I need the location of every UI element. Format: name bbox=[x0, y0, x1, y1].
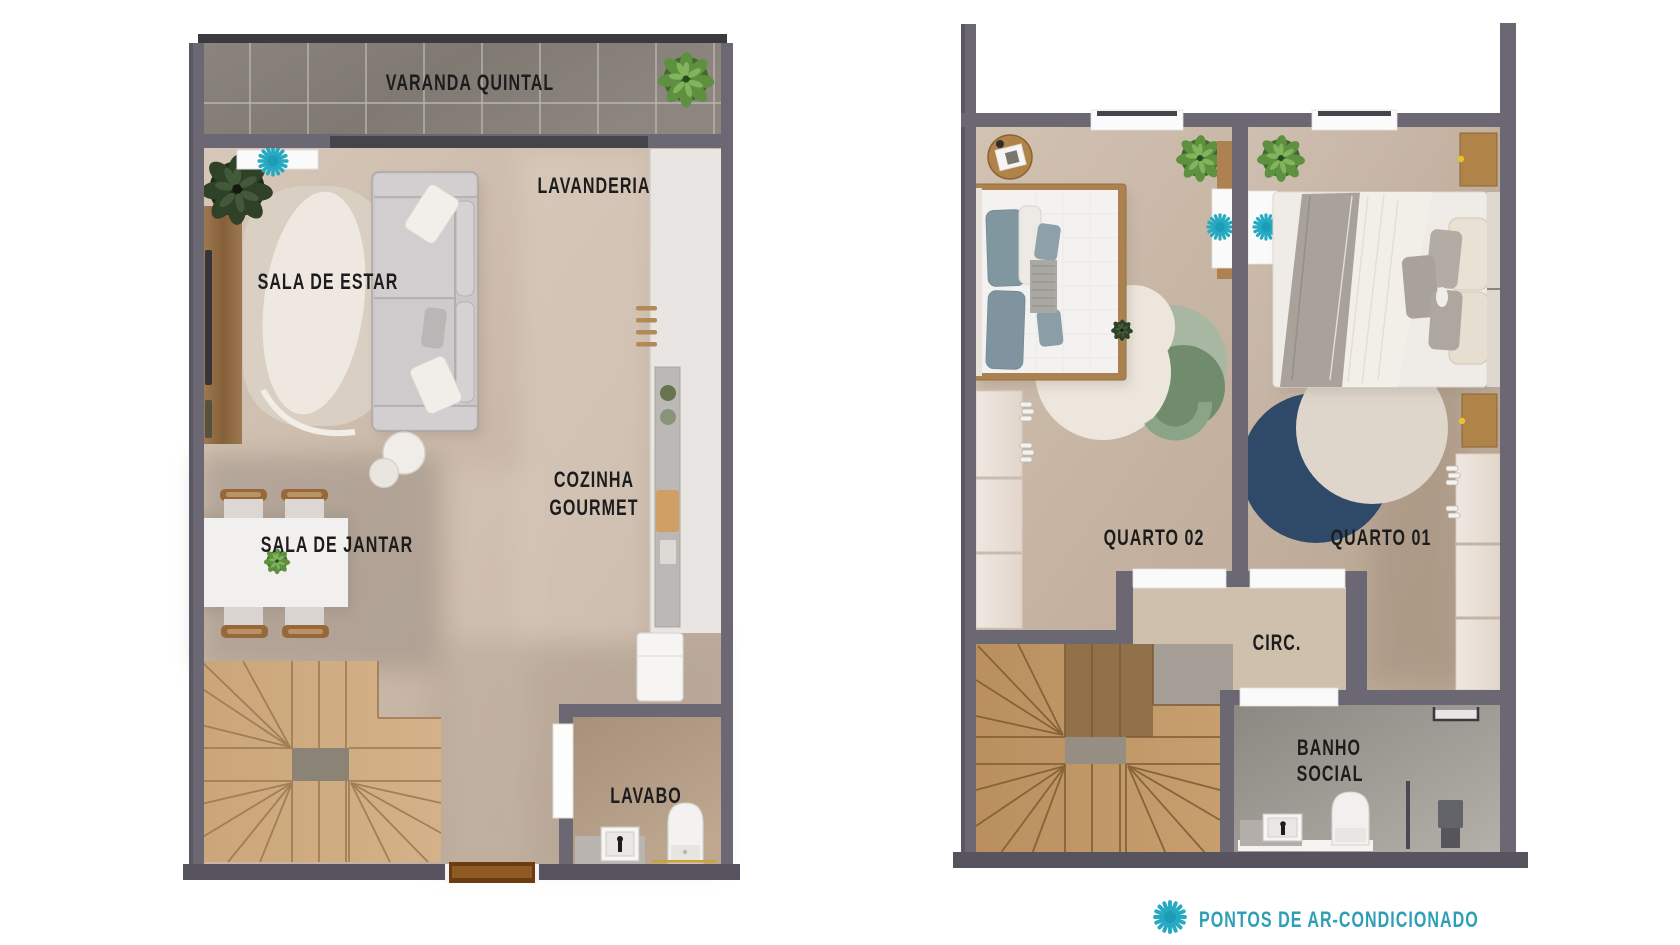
svg-text:SALA DE JANTAR: SALA DE JANTAR bbox=[261, 534, 414, 558]
svg-text:QUARTO 01: QUARTO 01 bbox=[1331, 527, 1432, 551]
svg-text:LAVABO: LAVABO bbox=[610, 785, 682, 809]
svg-text:VARANDA QUINTAL: VARANDA QUINTAL bbox=[386, 72, 554, 96]
svg-text:PONTOS DE AR-CONDICIONADO: PONTOS DE AR-CONDICIONADO bbox=[1199, 909, 1479, 933]
svg-text:COZINHA: COZINHA bbox=[554, 469, 634, 493]
svg-text:CIRC.: CIRC. bbox=[1253, 632, 1302, 656]
svg-text:QUARTO 02: QUARTO 02 bbox=[1104, 527, 1205, 551]
svg-text:BANHO: BANHO bbox=[1297, 737, 1361, 761]
svg-text:SALA DE ESTAR: SALA DE ESTAR bbox=[258, 271, 399, 295]
svg-text:GOURMET: GOURMET bbox=[549, 497, 638, 521]
svg-text:SOCIAL: SOCIAL bbox=[1297, 763, 1364, 787]
svg-text:LAVANDERIA: LAVANDERIA bbox=[537, 175, 650, 199]
